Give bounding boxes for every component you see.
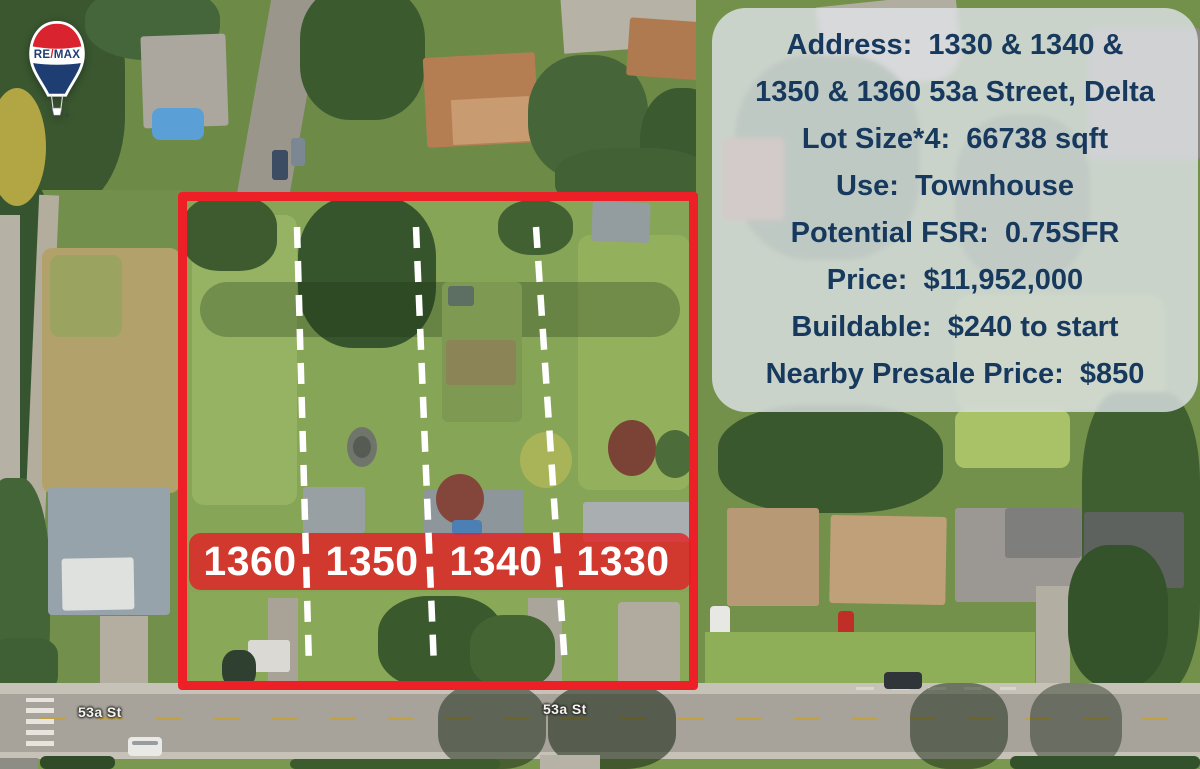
info-line-use: Use: Townhouse [716,163,1194,210]
info-line-lot-size: Lot Size*4: 66738 sqft [716,116,1194,163]
remax-balloon-logo: RE/MAX ® [25,20,89,124]
lot-label-1340: 1340 [431,533,561,590]
lot-divider-line [297,227,309,667]
info-line-price: Price: $11,952,000 [716,257,1194,304]
balloon-strings [51,95,62,108]
lot-label-1360: 1360 [185,533,315,590]
remax-re: RE [34,48,51,61]
lot-divider-line [536,227,565,667]
info-line-fsr: Potential FSR: 0.75SFR [716,210,1194,257]
balloon-basket [52,108,62,115]
info-line-buildable: Buildable: $240 to start [716,304,1194,351]
lot-label-1350: 1350 [307,533,437,590]
info-panel: Address: 1330 & 1340 & 1350 & 1360 53a S… [712,8,1198,412]
lot-label-1330: 1330 [558,533,688,590]
info-line-address-1: Address: 1330 & 1340 & [716,22,1194,69]
listing-graphic: 1360 1350 1340 1330 53a St 53a St Addres… [0,0,1200,769]
registered-trademark-symbol: ® [65,112,69,119]
info-line-presale-price: Nearby Presale Price: $850 [716,351,1194,398]
lot-divider-line [416,227,434,667]
info-line-address-2: 1350 & 1360 53a Street, Delta [716,69,1194,116]
remax-max: MAX [54,48,81,61]
remax-wordmark: RE/MAX [34,48,81,61]
